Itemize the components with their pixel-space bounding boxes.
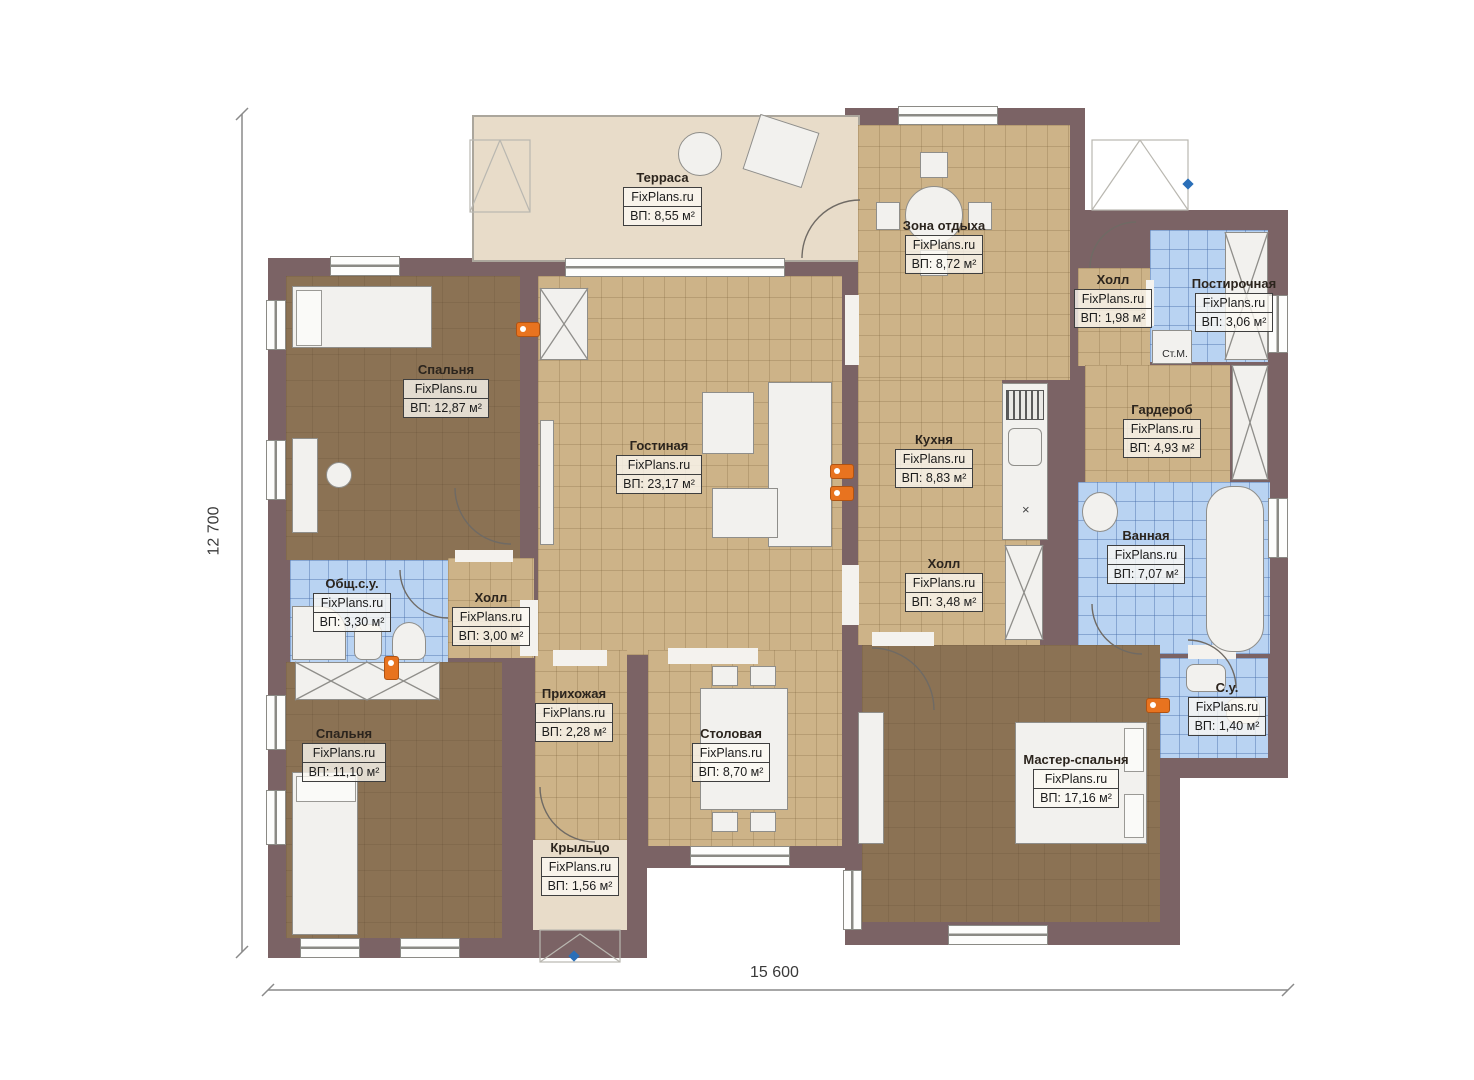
watermark: FixPlans.ru (896, 450, 973, 468)
room-name: Холл (446, 590, 536, 605)
room-name: Общ.с.у. (304, 576, 400, 591)
radiator-marker (384, 656, 399, 680)
room-label-entry: Прихожая FixPlans.ru ВП: 2,28 м² (528, 686, 620, 742)
wardrobe-cabinet (295, 662, 440, 700)
door-opening (553, 650, 607, 666)
room-name: Постирочная (1186, 276, 1282, 291)
room-info-box: FixPlans.ru ВП: 1,40 м² (1188, 697, 1267, 736)
washing-machine-label: Ст.М. (1152, 348, 1198, 360)
cabinet (1232, 365, 1268, 480)
room-name: Мастер-спальня (1015, 752, 1137, 767)
wardrobe-cabinet (858, 712, 884, 844)
room-info-box: FixPlans.ru ВП: 1,98 м² (1074, 289, 1153, 328)
radiator-marker (830, 486, 854, 501)
room-name: Крыльцо (534, 840, 626, 855)
watermark: FixPlans.ru (303, 744, 386, 762)
room-info-box: FixPlans.ru ВП: 8,55 м² (623, 187, 702, 226)
room-info-box: FixPlans.ru ВП: 12,87 м² (403, 379, 489, 418)
room-label-master: Мастер-спальня FixPlans.ru ВП: 17,16 м² (1015, 752, 1137, 808)
dining-chair (750, 812, 776, 832)
window (843, 870, 862, 930)
room-label-wardrobe: Гардероб FixPlans.ru ВП: 4,93 м² (1112, 402, 1212, 458)
room-area: ВП: 1,98 м² (1075, 308, 1152, 327)
room-info-box: FixPlans.ru ВП: 23,17 м² (616, 455, 702, 494)
tv-stand (540, 420, 554, 545)
room-label-living: Гостиная FixPlans.ru ВП: 23,17 м² (600, 438, 718, 494)
room-info-box: FixPlans.ru ВП: 17,16 м² (1033, 769, 1119, 808)
watermark: FixPlans.ru (1196, 294, 1273, 312)
room-area: ВП: 7,07 м² (1108, 564, 1185, 583)
room-name: Столовая (682, 726, 780, 741)
room-name: Холл (1070, 272, 1156, 287)
room-area: ВП: 8,70 м² (693, 762, 770, 781)
entry-floor (535, 650, 627, 840)
dimension-width: 15 600 (750, 964, 799, 982)
watermark: FixPlans.ru (1075, 290, 1152, 308)
watermark: FixPlans.ru (1108, 546, 1185, 564)
window (1268, 498, 1288, 558)
kitchen-sink (1008, 428, 1042, 466)
window (300, 938, 360, 958)
watermark: FixPlans.ru (1034, 770, 1118, 788)
watermark: FixPlans.ru (1189, 698, 1266, 716)
room-area: ВП: 3,00 м² (453, 626, 530, 645)
room-area: ВП: 23,17 м² (617, 474, 701, 493)
room-name: Прихожая (528, 686, 620, 701)
room-info-box: FixPlans.ru ВП: 7,07 м² (1107, 545, 1186, 584)
radiator-marker (1146, 698, 1170, 713)
room-info-box: FixPlans.ru ВП: 2,28 м² (535, 703, 614, 742)
room-label-hall-mid: Холл FixPlans.ru ВП: 3,48 м² (896, 556, 992, 612)
room-label-wc: С.у. FixPlans.ru ВП: 1,40 м² (1186, 680, 1268, 736)
watermark: FixPlans.ru (617, 456, 701, 474)
room-name: С.у. (1186, 680, 1268, 695)
window (330, 256, 400, 276)
room-name: Гардероб (1112, 402, 1212, 417)
room-label-hall-left: Холл FixPlans.ru ВП: 3,00 м² (446, 590, 536, 646)
side-table (712, 488, 778, 538)
room-name: Терраса (600, 170, 725, 185)
watermark: FixPlans.ru (624, 188, 701, 206)
floor-plan: × Ст.М. (0, 0, 1474, 1080)
room-name: Ванная (1098, 528, 1194, 543)
window (690, 846, 790, 866)
room-label-lounge: Зона отдыха FixPlans.ru ВП: 8,72 м² (885, 218, 1003, 274)
room-label-kitchen: Кухня FixPlans.ru ВП: 8,83 м² (886, 432, 982, 488)
room-area: ВП: 8,55 м² (624, 206, 701, 225)
door-opening (845, 295, 859, 365)
room-label-terrace: Терраса FixPlans.ru ВП: 8,55 м² (600, 170, 725, 226)
room-label-bedroom-1: Спальня FixPlans.ru ВП: 12,87 м² (388, 362, 504, 418)
room-name: Кухня (886, 432, 982, 447)
window (266, 790, 286, 845)
bathroom-sink (1082, 492, 1118, 532)
room-info-box: FixPlans.ru ВП: 8,72 м² (905, 235, 984, 274)
room-info-box: FixPlans.ru ВП: 1,56 м² (541, 857, 620, 896)
room-info-box: FixPlans.ru ВП: 8,83 м² (895, 449, 974, 488)
window (266, 695, 286, 750)
watermark: FixPlans.ru (453, 608, 530, 626)
room-label-dining: Столовая FixPlans.ru ВП: 8,70 м² (682, 726, 780, 782)
bathtub (1206, 486, 1264, 652)
watermark: FixPlans.ru (542, 858, 619, 876)
room-area: ВП: 12,87 м² (404, 398, 488, 417)
window (266, 440, 286, 500)
room-area: ВП: 11,10 м² (303, 762, 386, 781)
room-area: ВП: 2,28 м² (536, 722, 613, 741)
dimension-height: 12 700 (205, 507, 223, 556)
room-area: ВП: 8,83 м² (896, 468, 973, 487)
cabinet (1005, 545, 1043, 640)
room-name: Зона отдыха (885, 218, 1003, 233)
watermark: FixPlans.ru (536, 704, 613, 722)
room-name: Спальня (292, 726, 396, 741)
lounge-chair (920, 152, 948, 178)
watermark: FixPlans.ru (314, 594, 391, 612)
room-name: Холл (896, 556, 992, 571)
dining-chair (712, 666, 738, 686)
window (400, 938, 460, 958)
room-area: ВП: 17,16 м² (1034, 788, 1118, 807)
room-label-hall-top: Холл FixPlans.ru ВП: 1,98 м² (1070, 272, 1156, 328)
dining-chair (712, 812, 738, 832)
watermark: FixPlans.ru (906, 574, 983, 592)
desk (292, 438, 318, 533)
room-info-box: FixPlans.ru ВП: 3,06 м² (1195, 293, 1274, 332)
room-area: ВП: 3,30 м² (314, 612, 391, 631)
radiator-marker (830, 464, 854, 479)
room-label-laundry: Постирочная FixPlans.ru ВП: 3,06 м² (1186, 276, 1282, 332)
pillow (296, 290, 322, 346)
watermark: FixPlans.ru (906, 236, 983, 254)
window (898, 106, 998, 125)
room-label-shared-wc: Общ.с.у. FixPlans.ru ВП: 3,30 м² (304, 576, 400, 632)
room-info-box: FixPlans.ru ВП: 8,70 м² (692, 743, 771, 782)
terrace-sliding-door (565, 258, 785, 277)
room-info-box: FixPlans.ru ВП: 11,10 м² (302, 743, 387, 782)
radiator-marker (516, 322, 540, 337)
watermark: FixPlans.ru (1124, 420, 1201, 438)
door-opening (668, 648, 758, 664)
door-opening (455, 550, 513, 562)
room-area: ВП: 4,93 м² (1124, 438, 1201, 457)
fireplace (540, 288, 588, 360)
watermark: FixPlans.ru (404, 380, 488, 398)
survey-marker (1182, 178, 1193, 189)
chair (326, 462, 352, 488)
room-info-box: FixPlans.ru ВП: 3,30 м² (313, 593, 392, 632)
room-label-bedroom-2: Спальня FixPlans.ru ВП: 11,10 м² (292, 726, 396, 782)
room-info-box: FixPlans.ru ВП: 4,93 м² (1123, 419, 1202, 458)
room-area: ВП: 1,40 м² (1189, 716, 1266, 735)
room-area: ВП: 8,72 м² (906, 254, 983, 273)
dining-chair (750, 666, 776, 686)
stove (1006, 390, 1044, 420)
kitchen-mark: × (1022, 502, 1030, 517)
door-opening (872, 632, 934, 646)
room-label-bathroom: Ванная FixPlans.ru ВП: 7,07 м² (1098, 528, 1194, 584)
room-label-porch: Крыльцо FixPlans.ru ВП: 1,56 м² (534, 840, 626, 896)
room-area: ВП: 3,06 м² (1196, 312, 1273, 331)
window (266, 300, 286, 350)
window (948, 925, 1048, 945)
room-info-box: FixPlans.ru ВП: 3,48 м² (905, 573, 984, 612)
room-area: ВП: 3,48 м² (906, 592, 983, 611)
room-name: Гостиная (600, 438, 718, 453)
door-opening (842, 565, 859, 625)
room-area: ВП: 1,56 м² (542, 876, 619, 895)
room-name: Спальня (388, 362, 504, 377)
watermark: FixPlans.ru (693, 744, 770, 762)
room-info-box: FixPlans.ru ВП: 3,00 м² (452, 607, 531, 646)
